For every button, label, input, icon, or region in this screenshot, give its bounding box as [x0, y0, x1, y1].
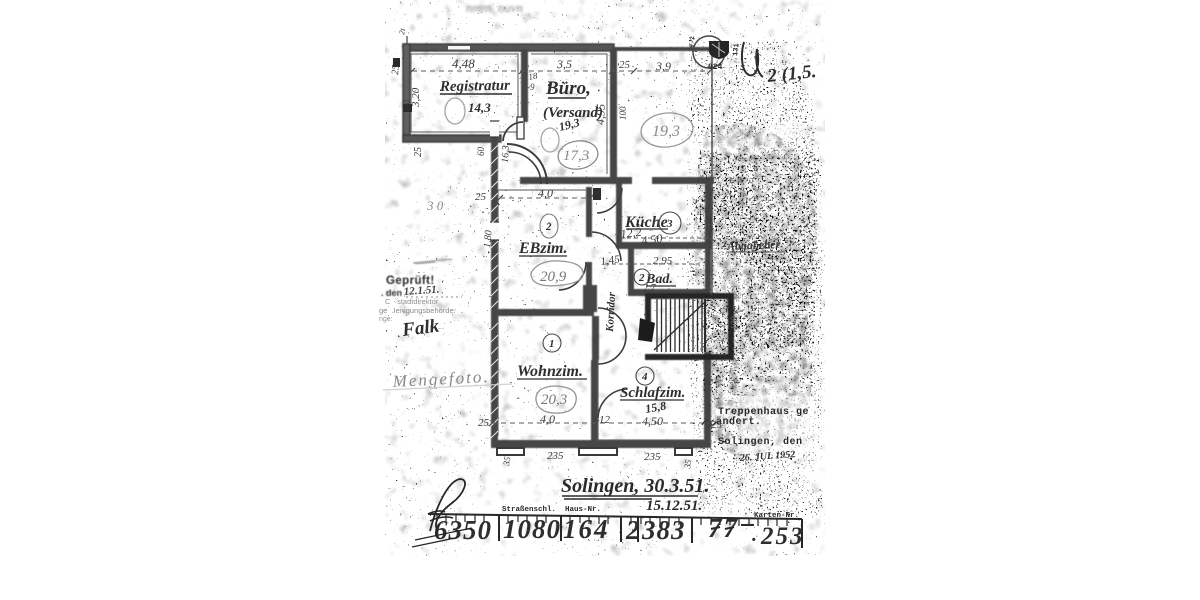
svg-text:1,80: 1,80 [482, 230, 494, 248]
svg-text:12.1.51.: 12.1.51. [403, 284, 440, 298]
svg-text:4,0: 4,0 [538, 186, 553, 200]
svg-text:-9: -9 [527, 82, 535, 92]
svg-text:Büro,: Büro, [545, 78, 591, 99]
svg-text:Registratur: Registratur [439, 78, 510, 95]
svg-text:3: 3 [666, 218, 673, 230]
svg-text:Straßenschl.: Straßenschl. [502, 506, 556, 514]
svg-text:EBzim.: EBzim. [518, 240, 567, 257]
svg-text:19,3: 19,3 [652, 123, 680, 140]
svg-text:824: 824 [708, 63, 723, 72]
svg-text:131: 131 [732, 43, 741, 56]
svg-text:Korridor: Korridor [604, 291, 618, 333]
svg-text:383: 383 [641, 515, 686, 545]
svg-text:3,5: 3,5 [556, 57, 572, 71]
svg-text:4,50: 4,50 [642, 414, 663, 428]
svg-text:Wohnzim.: Wohnzim. [517, 363, 583, 380]
svg-text:F-2: F-2 [689, 36, 696, 47]
svg-text:+ 2: + 2 [716, 240, 727, 249]
svg-text:17,3: 17,3 [563, 148, 589, 164]
svg-text:60: 60 [476, 147, 486, 157]
svg-text:nge:: nge: [379, 316, 393, 323]
svg-text:235: 235 [547, 450, 564, 462]
svg-text:C `stadtdirektor: C `stadtdirektor [385, 297, 439, 306]
svg-text:2,70: 2,70 [704, 216, 714, 232]
svg-text:25: 25 [478, 417, 490, 429]
svg-text:1080: 1080 [503, 514, 561, 544]
svg-text:25: 25 [413, 147, 424, 157]
svg-text:.: . [752, 524, 757, 546]
svg-text:2: 2 [625, 515, 640, 545]
svg-text:ge .Ienigungsbehörde:: ge .Ienigungsbehörde: [379, 306, 456, 315]
svg-text:16,3: 16,3 [500, 145, 512, 163]
svg-text:12: 12 [599, 414, 611, 426]
svg-text:235: 235 [644, 451, 661, 463]
svg-text:4,0: 4,0 [540, 412, 555, 426]
svg-text:14,3: 14,3 [468, 100, 491, 115]
svg-text:1: 1 [549, 338, 555, 350]
svg-text:100: 100 [402, 100, 411, 112]
svg-text:2: 2 [545, 221, 552, 233]
svg-text:4,48: 4,48 [452, 56, 475, 71]
svg-text:ändert.: ändert. [716, 416, 762, 428]
svg-text:nmm nuvn: nmm nuvn [466, 0, 523, 15]
svg-text:3,9: 3,9 [655, 59, 671, 73]
svg-text:25: 25 [619, 59, 631, 71]
svg-text:15.12.51.: 15.12.51. [646, 498, 702, 514]
svg-text:Haus-Nr.: Haus-Nr. [565, 506, 601, 514]
svg-text:12,2: 12,2 [620, 225, 642, 241]
svg-text:4,50: 4,50 [640, 231, 663, 248]
svg-text:Karten-Nr.: Karten-Nr. [754, 512, 799, 520]
svg-text:Schlafzim.: Schlafzim. [620, 385, 685, 401]
svg-text:Solingen, den: Solingen, den [718, 436, 803, 448]
svg-text:25: 25 [390, 64, 402, 75]
svg-text:20,3: 20,3 [541, 392, 567, 408]
svg-text:100: 100 [729, 316, 739, 330]
svg-text:4: 4 [641, 371, 648, 383]
svg-text:2,95: 2,95 [653, 255, 673, 267]
svg-text:Solingen, 30.3.51.: Solingen, 30.3.51. [561, 475, 709, 497]
svg-text:4,95: 4,95 [593, 104, 608, 125]
svg-text:100: 100 [618, 106, 628, 120]
svg-text:20,9: 20,9 [540, 269, 567, 285]
svg-text:25: 25 [475, 191, 487, 203]
svg-text:2: 2 [638, 272, 645, 284]
svg-text:un mvu: un mvu [520, 27, 558, 41]
svg-text:Abgabeber: Abgabeber [726, 237, 781, 253]
svg-text:164: 164 [563, 514, 610, 544]
svg-text:3 0: 3 0 [426, 198, 444, 213]
svg-text:3,20: 3,20 [410, 87, 422, 108]
svg-text:253: 253 [760, 523, 805, 550]
